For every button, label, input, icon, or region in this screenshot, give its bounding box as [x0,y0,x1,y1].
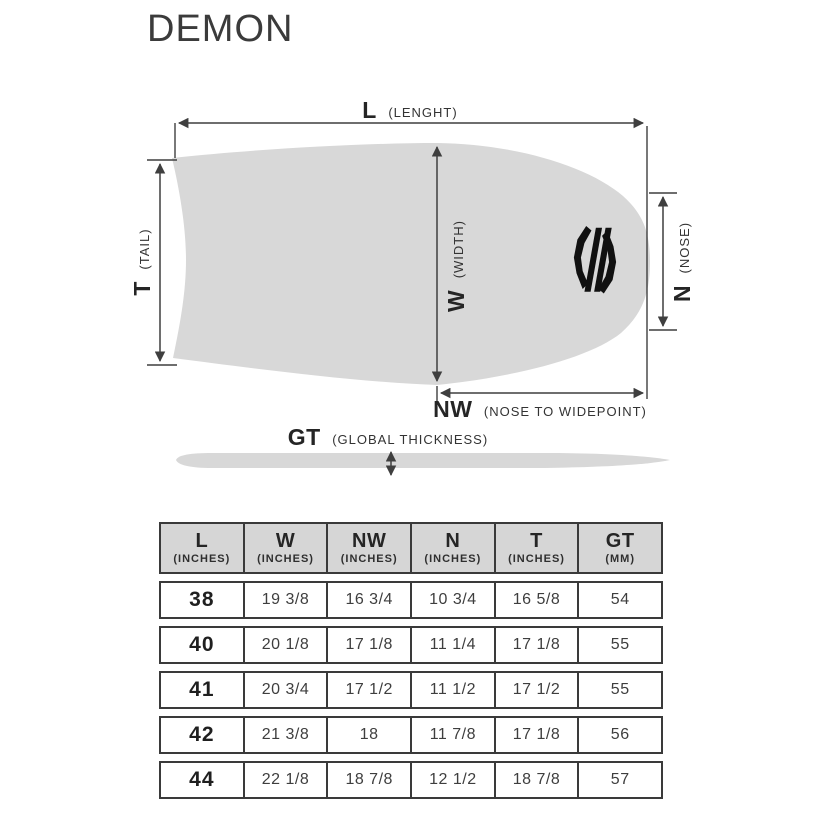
cell-gt: 55 [579,628,661,662]
cell-size: 42 [161,718,245,752]
cell-nose: 11 1/2 [412,673,496,707]
board-side-profile [176,453,670,468]
column-abbr: NW [352,531,386,552]
nw-label: NW (NOSE TO WIDEPOINT) [433,396,647,422]
gt-label: GT (GLOBAL THICKNESS) [288,424,488,450]
column-unit: (INCHES) [173,554,230,566]
cell-width: 20 1/8 [245,628,329,662]
cell-tail: 17 1/8 [496,628,580,662]
cell-nw: 17 1/2 [328,673,412,707]
table-row-44: 44 22 1/8 18 7/8 12 1/2 18 7/8 57 [159,761,663,799]
cell-nw: 17 1/8 [328,628,412,662]
board-dimension-diagram: L (LENGHT) T (TAIL) W (WIDTH) N (NOSE) N… [0,85,820,485]
cell-nose: 11 1/4 [412,628,496,662]
header-cell-t: T (INCHES) [496,524,580,572]
column-abbr: L [195,531,208,552]
header-cell-l: L (INCHES) [161,524,245,572]
cell-nose: 12 1/2 [412,763,496,797]
cell-size: 40 [161,628,245,662]
spec-table: L (INCHES) W (INCHES) NW (INCHES) N (INC… [159,522,663,799]
header-cell-n: N (INCHES) [412,524,496,572]
cell-gt: 54 [579,583,661,617]
cell-tail: 17 1/2 [496,673,580,707]
header-cell-nw: NW (INCHES) [328,524,412,572]
column-abbr: GT [606,531,635,552]
cell-width: 19 3/8 [245,583,329,617]
table-header-row: L (INCHES) W (INCHES) NW (INCHES) N (INC… [159,522,663,574]
table-row-42: 42 21 3/8 18 11 7/8 17 1/8 56 [159,716,663,754]
page-title: DEMON [147,8,293,51]
column-unit: (INCHES) [257,554,314,566]
cell-tail: 17 1/8 [496,718,580,752]
column-unit: (MM) [605,554,635,566]
cell-width: 21 3/8 [245,718,329,752]
nose-label: N (NOSE) [669,222,695,302]
cell-width: 20 3/4 [245,673,329,707]
cell-gt: 57 [579,763,661,797]
column-abbr: W [276,531,295,552]
cell-tail: 16 5/8 [496,583,580,617]
header-cell-gt: GT (MM) [579,524,661,572]
header-cell-w: W (INCHES) [245,524,329,572]
cell-size: 41 [161,673,245,707]
cell-nose: 10 3/4 [412,583,496,617]
column-abbr: N [445,531,460,552]
column-unit: (INCHES) [508,554,565,566]
table-row-38: 38 19 3/8 16 3/4 10 3/4 16 5/8 54 [159,581,663,619]
cell-nw: 18 [328,718,412,752]
cell-gt: 56 [579,718,661,752]
column-abbr: T [530,531,543,552]
cell-size: 44 [161,763,245,797]
tail-label: T (TAIL) [129,228,155,295]
cell-nw: 16 3/4 [328,583,412,617]
table-row-41: 41 20 3/4 17 1/2 11 1/2 17 1/2 55 [159,671,663,709]
cell-width: 22 1/8 [245,763,329,797]
column-unit: (INCHES) [341,554,398,566]
cell-nose: 11 7/8 [412,718,496,752]
cell-size: 38 [161,583,245,617]
length-label: L (LENGHT) [362,97,457,123]
cell-tail: 18 7/8 [496,763,580,797]
cell-nw: 18 7/8 [328,763,412,797]
column-unit: (INCHES) [424,554,481,566]
cell-gt: 55 [579,673,661,707]
table-row-40: 40 20 1/8 17 1/8 11 1/4 17 1/8 55 [159,626,663,664]
